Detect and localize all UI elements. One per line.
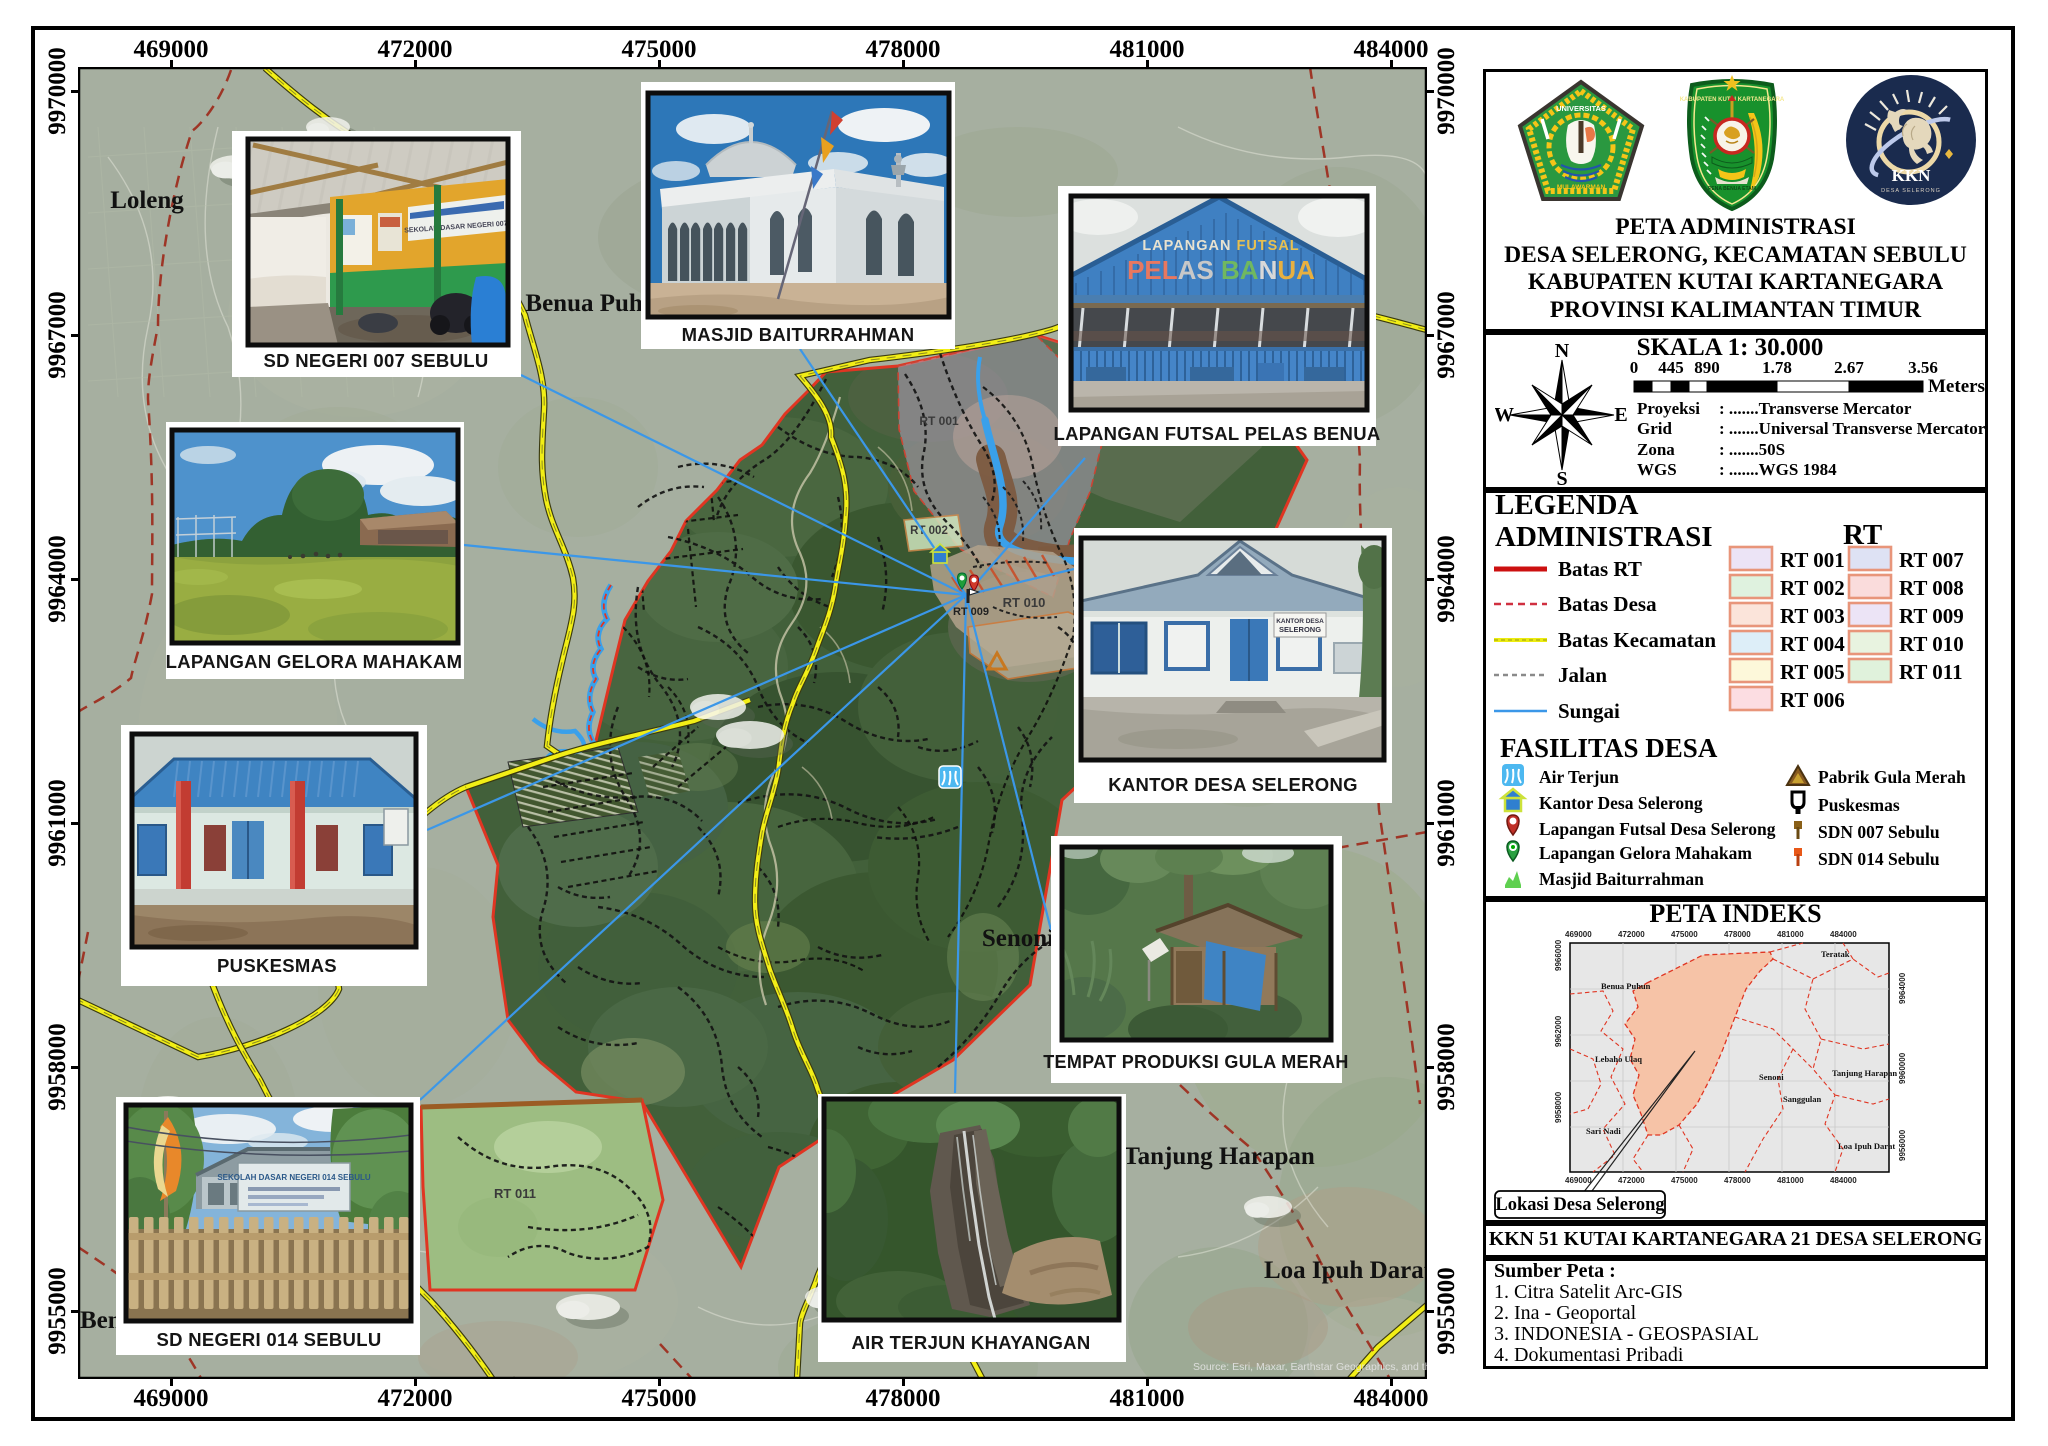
svg-text:SD NEGERI 014 SEBULU: SD NEGERI 014 SEBULU	[157, 1329, 382, 1350]
svg-text:Sari Nadi: Sari Nadi	[1586, 1126, 1621, 1136]
svg-text:UNIVERSITAS: UNIVERSITAS	[1556, 104, 1606, 113]
svg-text:LAPANGAN GELORA MAHAKAM: LAPANGAN GELORA MAHAKAM	[166, 651, 463, 672]
svg-text:DESA SELERONG: DESA SELERONG	[1881, 188, 1941, 194]
svg-text:Sungai: Sungai	[1558, 699, 1620, 723]
svg-text:Loleng: Loleng	[110, 187, 184, 214]
svg-text:LAPANGAN FUTSAL PELAS BENUA: LAPANGAN FUTSAL PELAS BENUA	[1053, 423, 1380, 444]
svg-text:RT 002: RT 002	[1780, 576, 1845, 600]
svg-text:Masjid Baiturrahman: Masjid Baiturrahman	[1539, 869, 1704, 889]
svg-text:484000: 484000	[1830, 930, 1857, 939]
svg-text:9960000: 9960000	[1898, 1052, 1907, 1084]
svg-text:484000: 484000	[1830, 1176, 1857, 1185]
svg-text:MULAWARMAN: MULAWARMAN	[1557, 184, 1606, 191]
svg-text:SEKOLAH DASAR NEGERI 014 SEBUL: SEKOLAH DASAR NEGERI 014 SEBULU	[217, 1173, 371, 1182]
svg-text:RT 009: RT 009	[1899, 604, 1964, 628]
svg-text:9964000: 9964000	[1898, 972, 1907, 1004]
svg-text:478000: 478000	[1724, 1176, 1751, 1185]
svg-text:N: N	[1555, 340, 1570, 362]
svg-text:890: 890	[1694, 358, 1720, 377]
svg-text:PELAS BANUA: PELAS BANUA	[1127, 255, 1315, 285]
svg-text:Lapangan Gelora Mahakam: Lapangan Gelora Mahakam	[1539, 843, 1752, 863]
svg-text:0: 0	[1630, 358, 1639, 377]
svg-text:472000: 472000	[1618, 1176, 1645, 1185]
svg-text:9962000: 9962000	[1554, 1015, 1563, 1047]
svg-text:478000: 478000	[1724, 930, 1751, 939]
svg-text:KKN: KKN	[1892, 166, 1931, 185]
svg-text:RT 008: RT 008	[1899, 576, 1964, 600]
svg-text:9958000: 9958000	[1554, 1091, 1563, 1123]
svg-text:Tanjung Harapan: Tanjung Harapan	[1123, 1143, 1315, 1170]
svg-text:Tanjung Harapan: Tanjung Harapan	[1832, 1068, 1897, 1078]
svg-text:PUSKESMAS: PUSKESMAS	[217, 955, 337, 976]
svg-text:481000: 481000	[1777, 930, 1804, 939]
svg-text:RT 011: RT 011	[494, 1186, 536, 1201]
svg-text:Lebaho Ulaq: Lebaho Ulaq	[1595, 1054, 1642, 1064]
svg-text:LAPANGAN FUTSAL: LAPANGAN FUTSAL	[1142, 238, 1299, 254]
svg-text:KANTOR DESA: KANTOR DESA	[1276, 618, 1324, 625]
svg-text:Lokasi Desa Selerong: Lokasi Desa Selerong	[1495, 1195, 1665, 1215]
svg-text:RT 005: RT 005	[1780, 660, 1845, 684]
svg-text:Senoni: Senoni	[982, 925, 1054, 952]
svg-text:RT 011: RT 011	[1899, 660, 1963, 684]
svg-text:TEMPAT PRODUKSI GULA MERAH: TEMPAT PRODUKSI GULA MERAH	[1043, 1052, 1348, 1072]
svg-text:Loa Ipuh Darat: Loa Ipuh Darat	[1838, 1141, 1895, 1151]
svg-text:469000: 469000	[1565, 930, 1592, 939]
svg-text:W: W	[1495, 404, 1514, 426]
svg-text:PENA BENUA ETAM: PENA BENUA ETAM	[1708, 186, 1756, 192]
svg-text:S: S	[1556, 468, 1567, 485]
svg-text:RT 010: RT 010	[1003, 595, 1046, 610]
svg-text:RT 006: RT 006	[1780, 688, 1845, 712]
svg-text:RT 002: RT 002	[910, 525, 948, 537]
svg-text:KANTOR DESA SELERONG: KANTOR DESA SELERONG	[1108, 774, 1358, 795]
svg-text:RT 001: RT 001	[1780, 548, 1845, 572]
svg-text:RT 003: RT 003	[1780, 604, 1845, 628]
svg-text:1.78: 1.78	[1762, 358, 1792, 377]
svg-text:475000: 475000	[1671, 1176, 1698, 1185]
svg-text:SELERONG: SELERONG	[1279, 625, 1321, 634]
svg-text:Puskesmas: Puskesmas	[1818, 795, 1900, 815]
svg-text:469000: 469000	[1565, 1176, 1592, 1185]
svg-text:SDN 007 Sebulu: SDN 007 Sebulu	[1818, 822, 1940, 842]
svg-text:Senoni: Senoni	[1759, 1072, 1784, 1082]
svg-text:Lapangan Futsal Desa Selerong: Lapangan Futsal Desa Selerong	[1539, 819, 1776, 839]
svg-text:Batas RT: Batas RT	[1558, 557, 1642, 581]
svg-text:Air Terjun: Air Terjun	[1539, 767, 1619, 787]
svg-text:Pabrik Gula Merah: Pabrik Gula Merah	[1818, 767, 1966, 787]
svg-text:RT 009: RT 009	[953, 606, 989, 618]
svg-text:AIR TERJUN KHAYANGAN: AIR TERJUN KHAYANGAN	[851, 1332, 1090, 1353]
svg-text:Kantor Desa Selerong: Kantor Desa Selerong	[1539, 793, 1703, 813]
svg-text:2.67: 2.67	[1834, 358, 1864, 377]
svg-text:Source: Esri, Maxar, Earthstar: Source: Esri, Maxar, Earthstar Geographi…	[1193, 1361, 1427, 1373]
svg-text:Sanggulan: Sanggulan	[1783, 1094, 1822, 1104]
svg-text:472000: 472000	[1618, 930, 1645, 939]
svg-text:FASILITAS DESA: FASILITAS DESA	[1500, 733, 1718, 763]
svg-text:RT 001: RT 001	[919, 414, 959, 428]
svg-text:RT 007: RT 007	[1899, 548, 1964, 572]
svg-text:Jalan: Jalan	[1558, 663, 1607, 687]
svg-text:RT 010: RT 010	[1899, 632, 1964, 656]
svg-text:Batas Kecamatan: Batas Kecamatan	[1558, 628, 1716, 652]
svg-text:Benua Puhun: Benua Puhun	[1601, 981, 1651, 991]
svg-text:Meters: Meters	[1928, 376, 1985, 397]
svg-text:Batas Desa: Batas Desa	[1558, 592, 1657, 616]
svg-text:445: 445	[1658, 358, 1684, 377]
svg-text:9956000: 9956000	[1898, 1129, 1907, 1161]
svg-text:MASJID BAITURRAHMAN: MASJID BAITURRAHMAN	[682, 324, 915, 345]
svg-text:481000: 481000	[1777, 1176, 1804, 1185]
svg-text:Loa Ipuh Darat: Loa Ipuh Darat	[1264, 1257, 1427, 1284]
svg-text:9966000: 9966000	[1554, 939, 1563, 971]
svg-text:3.56: 3.56	[1908, 358, 1938, 377]
svg-text:SDN 014 Sebulu: SDN 014 Sebulu	[1818, 849, 1940, 869]
svg-text:SD NEGERI 007 SEBULU: SD NEGERI 007 SEBULU	[264, 350, 489, 371]
svg-text:475000: 475000	[1671, 930, 1698, 939]
svg-text:E: E	[1614, 404, 1627, 426]
svg-text:Teratak: Teratak	[1821, 949, 1850, 959]
svg-text:RT 004: RT 004	[1780, 632, 1845, 656]
